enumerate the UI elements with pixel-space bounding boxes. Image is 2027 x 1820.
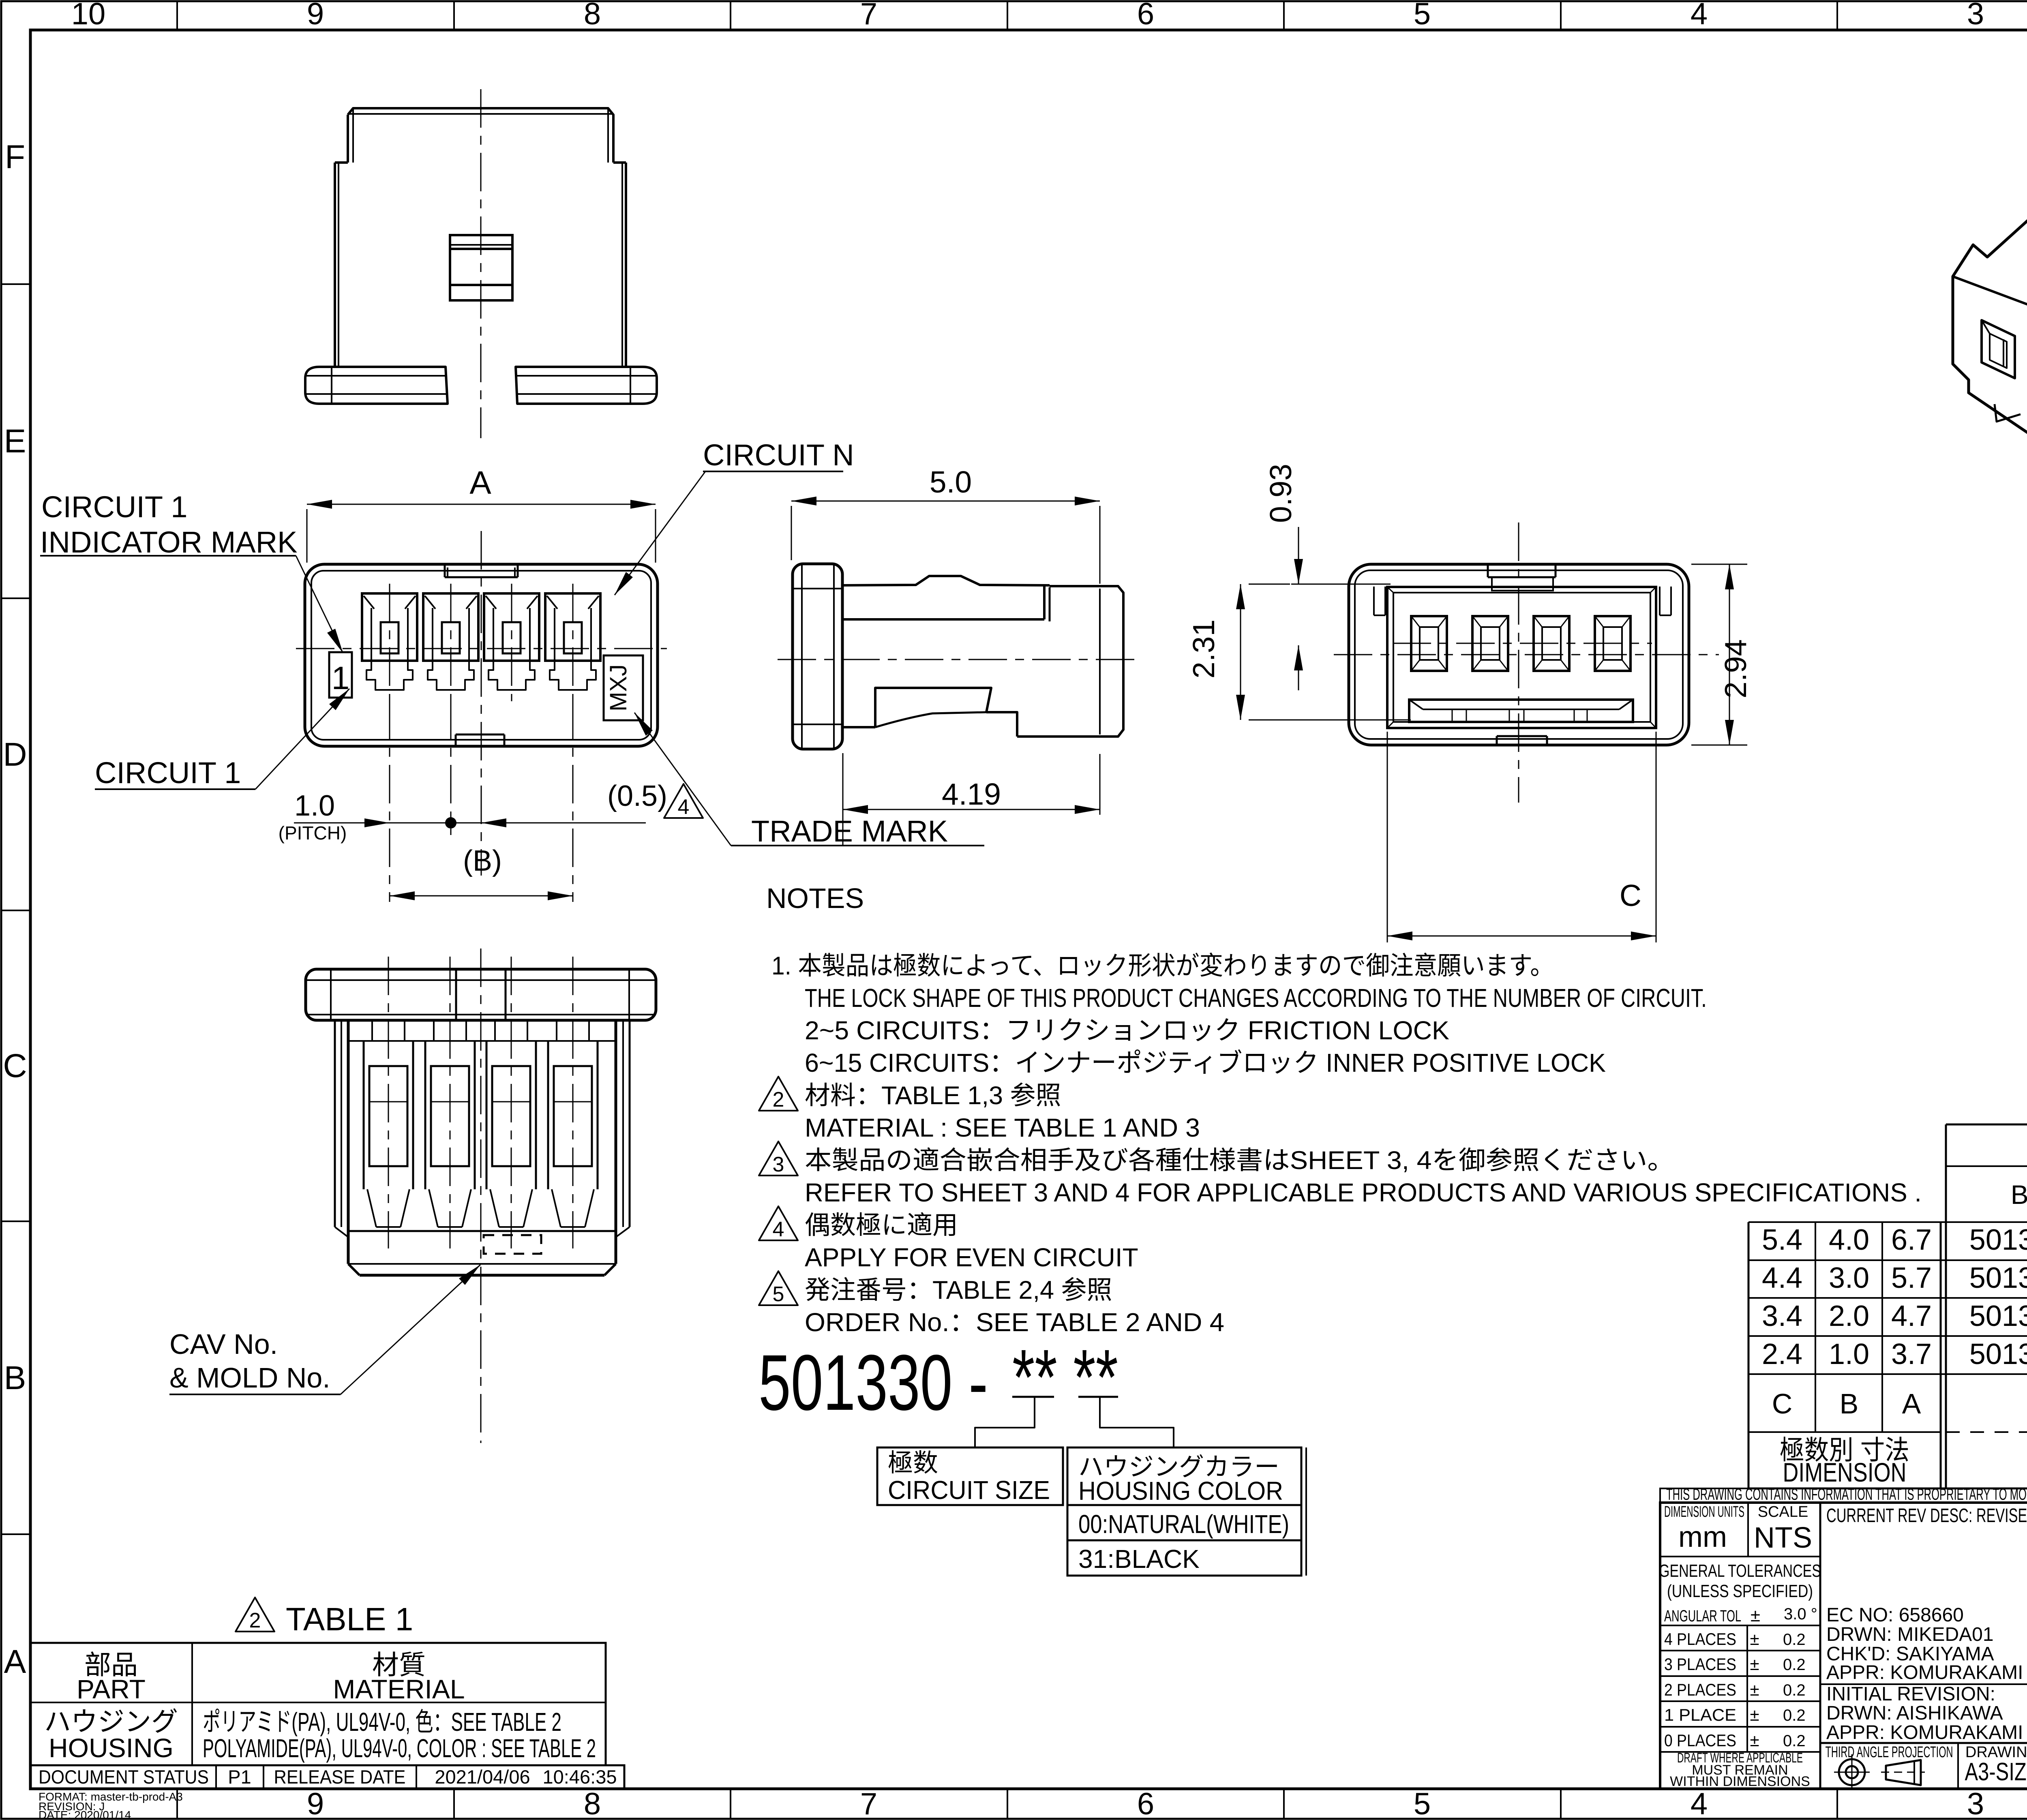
svg-text:10:46:35: 10:46:35 bbox=[543, 1766, 617, 1788]
svg-text:偶数極に適用: 偶数極に適用 bbox=[805, 1211, 958, 1240]
svg-text:2.94: 2.94 bbox=[1718, 639, 1753, 698]
svg-text:SCALE: SCALE bbox=[1758, 1503, 1808, 1520]
svg-text:4.19: 4.19 bbox=[942, 777, 1001, 811]
svg-text:DIMENSION: DIMENSION bbox=[1783, 1457, 1907, 1487]
svg-text:0 PLACES: 0 PLACES bbox=[1664, 1731, 1736, 1750]
svg-text:C: C bbox=[3, 1047, 27, 1084]
svg-text:3 PLACES: 3 PLACES bbox=[1664, 1655, 1736, 1674]
svg-text:501330 0531: 501330 0531 bbox=[1969, 1224, 2027, 1256]
svg-text:DIMENSION UNITS: DIMENSION UNITS bbox=[1664, 1503, 1744, 1520]
svg-text:TRADE MARK: TRADE MARK bbox=[751, 814, 948, 848]
svg-text:2~5 CIRCUITS：フリクションロック FRICTIO: 2~5 CIRCUITS：フリクションロック FRICTION LOCK bbox=[805, 1016, 1449, 1045]
svg-text:2.4: 2.4 bbox=[1762, 1338, 1802, 1370]
svg-text:6: 6 bbox=[1137, 1787, 1154, 1820]
svg-text:CURRENT REV DESC: REVISED: CURRENT REV DESC: REVISED bbox=[1826, 1505, 2027, 1527]
svg-text:7: 7 bbox=[860, 0, 877, 31]
svg-text:2.0: 2.0 bbox=[1829, 1300, 1869, 1332]
svg-text:THIRD ANGLE PROJECTION: THIRD ANGLE PROJECTION bbox=[1826, 1744, 1953, 1761]
svg-text:MXJ: MXJ bbox=[605, 664, 632, 711]
svg-text:31:BLACK: 31:BLACK bbox=[1078, 1544, 1200, 1574]
svg-text:3.0: 3.0 bbox=[1829, 1262, 1869, 1294]
svg-text:501330 0331: 501330 0331 bbox=[1969, 1300, 2027, 1332]
svg-text:極数: 極数 bbox=[888, 1449, 938, 1477]
svg-text:0.2: 0.2 bbox=[1783, 1707, 1806, 1724]
svg-text:C: C bbox=[1620, 878, 1641, 912]
svg-text:A: A bbox=[4, 1643, 26, 1680]
svg-text:APPR: KOMURAKAMI: APPR: KOMURAKAMI bbox=[1826, 1722, 2023, 1743]
svg-text:RELEASE DATE: RELEASE DATE bbox=[274, 1766, 406, 1788]
svg-text:PART: PART bbox=[77, 1674, 146, 1704]
svg-text:7: 7 bbox=[860, 1787, 877, 1820]
svg-text:4: 4 bbox=[678, 795, 690, 819]
svg-text:A: A bbox=[469, 465, 491, 501]
svg-text:INDICATOR MARK: INDICATOR MARK bbox=[40, 525, 298, 559]
svg-text:1. 本製品は極数によって、ロック形状が変わりますので御注意: 1. 本製品は極数によって、ロック形状が変わりますので御注意願います。 bbox=[771, 952, 1554, 980]
svg-text:INITIAL REVISION:: INITIAL REVISION: bbox=[1826, 1683, 1995, 1705]
svg-text:DRWN: AISHIKAWA: DRWN: AISHIKAWA bbox=[1826, 1702, 2003, 1724]
svg-text:P1: P1 bbox=[228, 1766, 251, 1788]
svg-text:DATE: 2020/01/14: DATE: 2020/01/14 bbox=[39, 1809, 131, 1820]
svg-text:2: 2 bbox=[249, 1609, 261, 1632]
svg-text:8: 8 bbox=[584, 0, 601, 31]
svg-text:5: 5 bbox=[1414, 1787, 1431, 1820]
svg-text:(UNLESS SPECIFIED): (UNLESS SPECIFIED) bbox=[1667, 1581, 1813, 1601]
svg-text:4: 4 bbox=[1691, 1787, 1708, 1820]
svg-text:3.0 °: 3.0 ° bbox=[1784, 1605, 1817, 1623]
svg-text:ANGULAR TOL: ANGULAR TOL bbox=[1664, 1607, 1741, 1625]
svg-text:4: 4 bbox=[773, 1218, 784, 1241]
svg-text:1.0: 1.0 bbox=[294, 790, 335, 822]
svg-text:±: ± bbox=[1750, 1655, 1759, 1674]
svg-text:1: 1 bbox=[332, 660, 350, 696]
svg-text:D: D bbox=[3, 736, 27, 773]
svg-text:材料：TABLE 1,3 参照: 材料：TABLE 1,3 参照 bbox=[805, 1081, 1061, 1110]
svg-text:** **: ** ** bbox=[1012, 1333, 1118, 1422]
svg-text:NTS: NTS bbox=[1754, 1522, 1812, 1554]
svg-text:0.93: 0.93 bbox=[1264, 464, 1298, 523]
svg-text:5.0: 5.0 bbox=[930, 465, 972, 499]
svg-text:2.31: 2.31 bbox=[1187, 619, 1221, 679]
svg-text:GENERAL TOLERANCES: GENERAL TOLERANCES bbox=[1659, 1561, 1821, 1581]
svg-text:(B): (B) bbox=[463, 845, 502, 877]
svg-text:DOCUMENT STATUS: DOCUMENT STATUS bbox=[39, 1766, 209, 1788]
svg-text:ハウジング: ハウジング bbox=[44, 1707, 178, 1736]
svg-text:NOTES: NOTES bbox=[766, 882, 864, 914]
svg-text:ポリアミド(PA), UL94V-0, 色：SEE TABL: ポリアミド(PA), UL94V-0, 色：SEE TABLE 2 bbox=[203, 1707, 561, 1736]
svg-text:6~15 CIRCUITS：インナーポジティブロック INN: 6~15 CIRCUITS：インナーポジティブロック INNER POSITIV… bbox=[805, 1048, 1606, 1077]
svg-text:MATERIAL : SEE TABLE 1 AND 3: MATERIAL : SEE TABLE 1 AND 3 bbox=[805, 1113, 1200, 1142]
svg-text:0.2: 0.2 bbox=[1783, 1732, 1806, 1750]
svg-text:POLYAMIDE(PA), UL94V-0, COLOR: POLYAMIDE(PA), UL94V-0, COLOR : SEE TABL… bbox=[203, 1734, 596, 1763]
svg-text:8: 8 bbox=[584, 1787, 601, 1820]
svg-text:0.2: 0.2 bbox=[1783, 1656, 1806, 1674]
svg-text:3.4: 3.4 bbox=[1762, 1300, 1802, 1332]
svg-text:±: ± bbox=[1750, 1731, 1759, 1750]
svg-text:5: 5 bbox=[773, 1283, 784, 1306]
svg-text:TABLE 1: TABLE 1 bbox=[286, 1601, 413, 1637]
svg-text:発注番号：TABLE 2,4 参照: 発注番号：TABLE 2,4 参照 bbox=[805, 1276, 1112, 1304]
svg-text:CIRCUIT SIZE: CIRCUIT SIZE bbox=[888, 1475, 1050, 1505]
svg-text:±: ± bbox=[1751, 1606, 1760, 1625]
svg-text:2021/04/06: 2021/04/06 bbox=[435, 1766, 530, 1788]
svg-text:±: ± bbox=[1750, 1705, 1759, 1724]
svg-text:APPR: KOMURAKAMI: APPR: KOMURAKAMI bbox=[1826, 1662, 2023, 1683]
svg-text:F: F bbox=[5, 139, 25, 176]
svg-text:4.0: 4.0 bbox=[1829, 1224, 1869, 1256]
svg-text:DRWN: MIKEDA01: DRWN: MIKEDA01 bbox=[1826, 1624, 1994, 1645]
svg-text:3: 3 bbox=[773, 1153, 784, 1176]
svg-text:REFER TO SHEET 3 AND 4 FOR APP: REFER TO SHEET 3 AND 4 FOR APPLICABLE PR… bbox=[805, 1178, 1922, 1207]
svg-text:2: 2 bbox=[773, 1088, 784, 1111]
svg-text:CIRCUIT 1: CIRCUIT 1 bbox=[41, 490, 187, 524]
svg-text:±: ± bbox=[1750, 1629, 1759, 1649]
svg-text:ORDER No.：SEE TABLE 2 AND 4: ORDER No.：SEE TABLE 2 AND 4 bbox=[805, 1308, 1224, 1337]
svg-text:A3-SIZE: A3-SIZE bbox=[1965, 1758, 2027, 1786]
svg-text:0.2: 0.2 bbox=[1783, 1681, 1806, 1699]
svg-text:(0.5): (0.5) bbox=[607, 780, 667, 812]
svg-text:CIRCUIT N: CIRCUIT N bbox=[703, 438, 854, 472]
svg-text:APPLY FOR EVEN CIRCUIT: APPLY FOR EVEN CIRCUIT bbox=[805, 1243, 1138, 1272]
svg-text:MATERIAL: MATERIAL bbox=[333, 1674, 465, 1704]
svg-text:9: 9 bbox=[307, 0, 324, 31]
svg-text:501330 0431: 501330 0431 bbox=[1969, 1262, 2027, 1294]
svg-text:5.4: 5.4 bbox=[1762, 1224, 1802, 1256]
svg-text:501330 0231: 501330 0231 bbox=[1969, 1338, 2027, 1370]
svg-text:0.2: 0.2 bbox=[1783, 1631, 1806, 1649]
svg-text:本製品の適合嵌合相手及び各種仕様書はSHEET 3, 4を御: 本製品の適合嵌合相手及び各種仕様書はSHEET 3, 4を御参照ください。 bbox=[805, 1146, 1674, 1175]
svg-text:6.7: 6.7 bbox=[1891, 1224, 1932, 1256]
svg-text:1 PLACE: 1 PLACE bbox=[1664, 1705, 1736, 1724]
svg-text:6: 6 bbox=[1137, 0, 1154, 31]
svg-text:4.4: 4.4 bbox=[1762, 1262, 1802, 1294]
svg-text:A: A bbox=[1902, 1388, 1921, 1420]
svg-text:1.0: 1.0 bbox=[1829, 1338, 1869, 1370]
svg-text:B: B bbox=[4, 1360, 26, 1396]
svg-text:WITHIN DIMENSIONS: WITHIN DIMENSIONS bbox=[1670, 1774, 1810, 1789]
svg-text:5.7: 5.7 bbox=[1891, 1262, 1932, 1294]
svg-text:5: 5 bbox=[1414, 0, 1431, 31]
svg-text:±: ± bbox=[1750, 1680, 1759, 1699]
svg-text:mm: mm bbox=[1678, 1521, 1727, 1553]
svg-text:THE LOCK SHAPE OF THIS PRODUCT: THE LOCK SHAPE OF THIS PRODUCT CHANGES A… bbox=[805, 983, 1707, 1013]
svg-text:BLACK: BLACK bbox=[2011, 1180, 2027, 1210]
svg-text:4.7: 4.7 bbox=[1891, 1300, 1932, 1332]
svg-text:EC NO: 658660: EC NO: 658660 bbox=[1826, 1604, 1964, 1626]
svg-text:(PITCH): (PITCH) bbox=[279, 822, 347, 844]
svg-text:2 PLACES: 2 PLACES bbox=[1664, 1680, 1736, 1699]
svg-text:C: C bbox=[1772, 1388, 1793, 1420]
svg-text:00:NATURAL(WHITE): 00:NATURAL(WHITE) bbox=[1078, 1510, 1289, 1539]
svg-text:3.7: 3.7 bbox=[1891, 1338, 1932, 1370]
svg-text:THIS DRAWING CONTAINS INFORMAT: THIS DRAWING CONTAINS INFORMATION THAT I… bbox=[1666, 1486, 2027, 1503]
svg-text:CAV No.: CAV No. bbox=[169, 1328, 278, 1360]
svg-text:3: 3 bbox=[1967, 1787, 1984, 1820]
svg-text:501330 -: 501330 - bbox=[759, 1338, 988, 1427]
svg-text:10: 10 bbox=[71, 0, 106, 31]
svg-text:4 PLACES: 4 PLACES bbox=[1664, 1629, 1736, 1649]
svg-text:HOUSING COLOR: HOUSING COLOR bbox=[1078, 1476, 1283, 1505]
svg-text:CIRCUIT 1: CIRCUIT 1 bbox=[95, 756, 241, 790]
svg-text:B: B bbox=[1840, 1388, 1859, 1420]
svg-text:& MOLD No.: & MOLD No. bbox=[169, 1362, 330, 1394]
svg-text:9: 9 bbox=[307, 1787, 324, 1820]
svg-text:3: 3 bbox=[1967, 0, 1984, 31]
svg-text:4: 4 bbox=[1691, 0, 1708, 31]
svg-text:E: E bbox=[4, 423, 26, 460]
svg-text:HOUSING: HOUSING bbox=[49, 1733, 174, 1763]
